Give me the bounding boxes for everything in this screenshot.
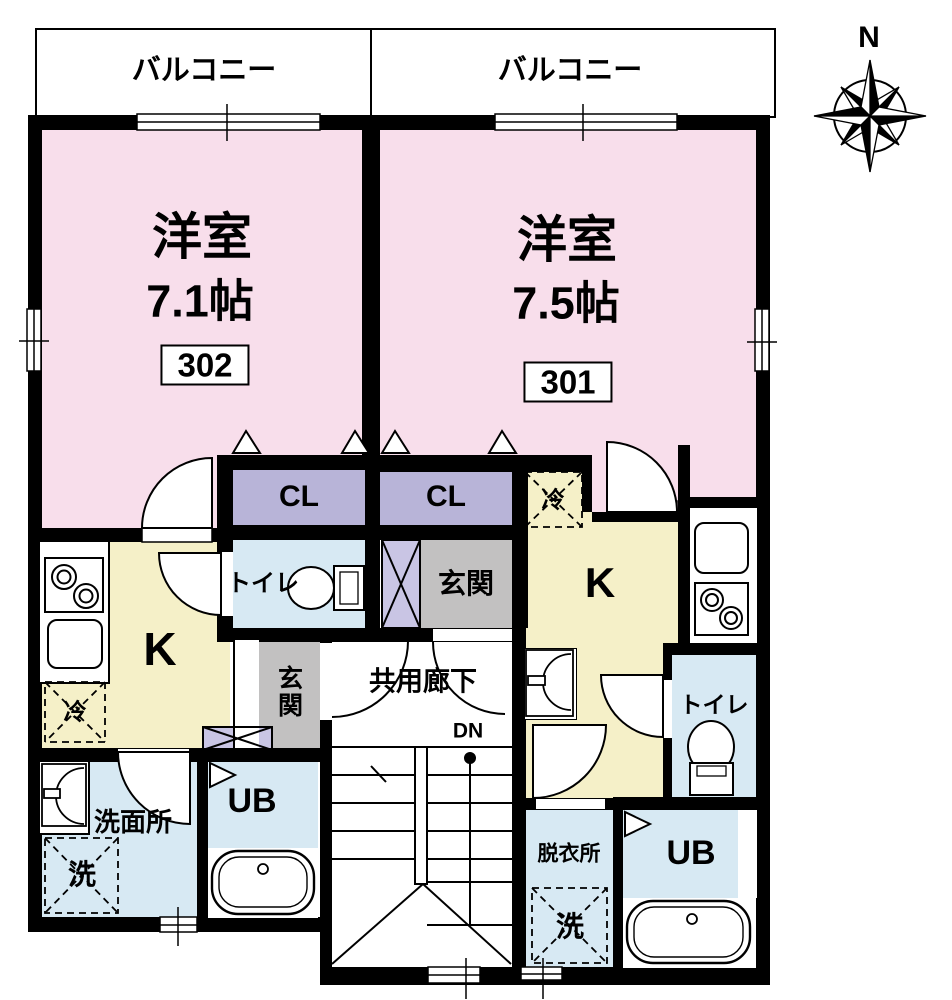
fridge-301-label: 冷 xyxy=(542,489,565,512)
corridor-label: 共用廊下 xyxy=(369,669,477,696)
closet-302-label: CL xyxy=(279,482,319,512)
bath-302-label: UB xyxy=(227,784,276,818)
staircase xyxy=(332,747,512,964)
fridge-302-label: 冷 xyxy=(64,701,87,724)
fridge-washer-boxes xyxy=(45,472,607,963)
room-302-type-label: 洋室 xyxy=(152,212,252,262)
room-301-type-label: 洋室 xyxy=(517,215,617,265)
balcony-right-label: バルコニー xyxy=(498,57,642,86)
washroom-302-label: 洗面所 xyxy=(94,809,172,835)
balcony-left-label: バルコニー xyxy=(132,57,276,86)
compass-rose xyxy=(814,60,926,172)
washer-301-label: 洗 xyxy=(556,913,584,941)
room-301-number: 301 xyxy=(523,362,612,403)
toilet-302-label: トイレ xyxy=(227,572,299,596)
toilet-icon xyxy=(288,566,734,795)
compass-north-label: N xyxy=(858,23,880,53)
washbasin-icon xyxy=(42,650,573,826)
entrance-302-label: 玄関 xyxy=(276,665,301,719)
door-swings xyxy=(118,442,677,824)
stairs-down-label: DN xyxy=(453,721,483,742)
floor-plan: バルコニー バルコニー 洋室 7.1帖 302 洋室 7.5帖 301 CL C… xyxy=(0,0,952,1000)
room-301-size-label: 7.5帖 xyxy=(512,281,620,326)
window-glyph xyxy=(19,104,777,999)
kitchen-302-label: K xyxy=(143,626,176,672)
kitchen-301-label: K xyxy=(585,562,615,604)
plan-linework xyxy=(0,0,952,1000)
room-302-number: 302 xyxy=(160,345,249,386)
room-302-size-label: 7.1帖 xyxy=(146,279,254,324)
washer-302-label: 洗 xyxy=(68,861,96,889)
toilet-301-label: トイレ xyxy=(680,694,749,717)
dressing-301-label: 脱衣所 xyxy=(538,844,601,865)
entrance-301-label: 玄関 xyxy=(438,570,494,598)
bath-301-label: UB xyxy=(666,836,715,870)
closet-301-label: CL xyxy=(426,482,466,512)
